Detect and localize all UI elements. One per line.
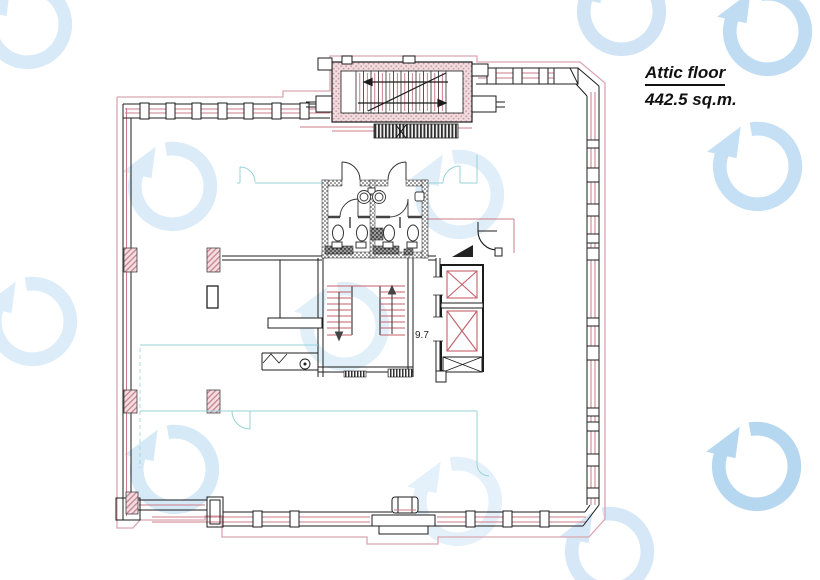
stair-block-top (306, 56, 505, 138)
rotate-arrow-logo-icon (717, 0, 805, 69)
elevator-cars (447, 271, 477, 351)
wc-sinks (358, 188, 425, 204)
stair-dimension-label: 9.7 (415, 330, 429, 341)
window-piers-top-left (140, 103, 309, 119)
balustrade-grill (374, 124, 458, 138)
floor-area-label: 442.5 sq.m. (645, 90, 737, 110)
drawing-title: Attic floor 442.5 sq.m. (645, 63, 737, 110)
rotate-arrow-logo-icon (571, 0, 659, 49)
bathroom-block (322, 162, 428, 258)
floor-name-label: Attic floor (645, 63, 725, 86)
elevator-shafts (433, 258, 483, 382)
rotate-arrow-logo-icon (0, 0, 65, 62)
rotate-arrow-logo-icon (0, 282, 70, 360)
wc-entry-doors (342, 162, 406, 180)
window-piers-top-right (487, 68, 578, 84)
rotate-arrow-logo-icon (122, 147, 210, 225)
rotate-arrow-logo-icon (706, 427, 794, 505)
window-piers-right (587, 140, 599, 498)
floorplan-page: Attic floor 442.5 sq.m. 9.7 (0, 0, 820, 580)
rotate-arrow-logo-icon (707, 127, 795, 205)
vent-shaft (436, 357, 482, 382)
